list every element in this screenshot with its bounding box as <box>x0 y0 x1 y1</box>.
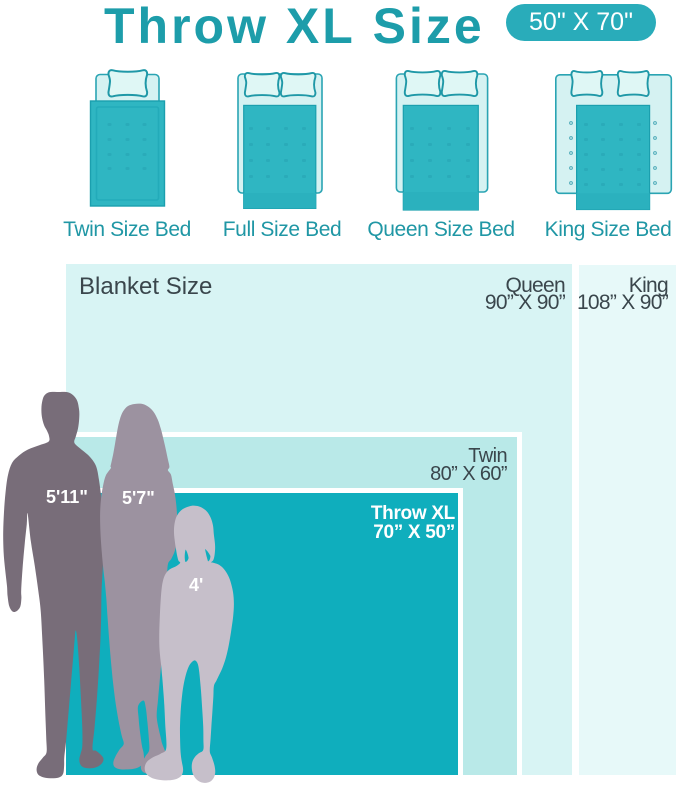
svg-text:5'11": 5'11" <box>46 487 88 507</box>
svg-text:5'7": 5'7" <box>122 488 155 508</box>
svg-text:4': 4' <box>189 575 203 595</box>
